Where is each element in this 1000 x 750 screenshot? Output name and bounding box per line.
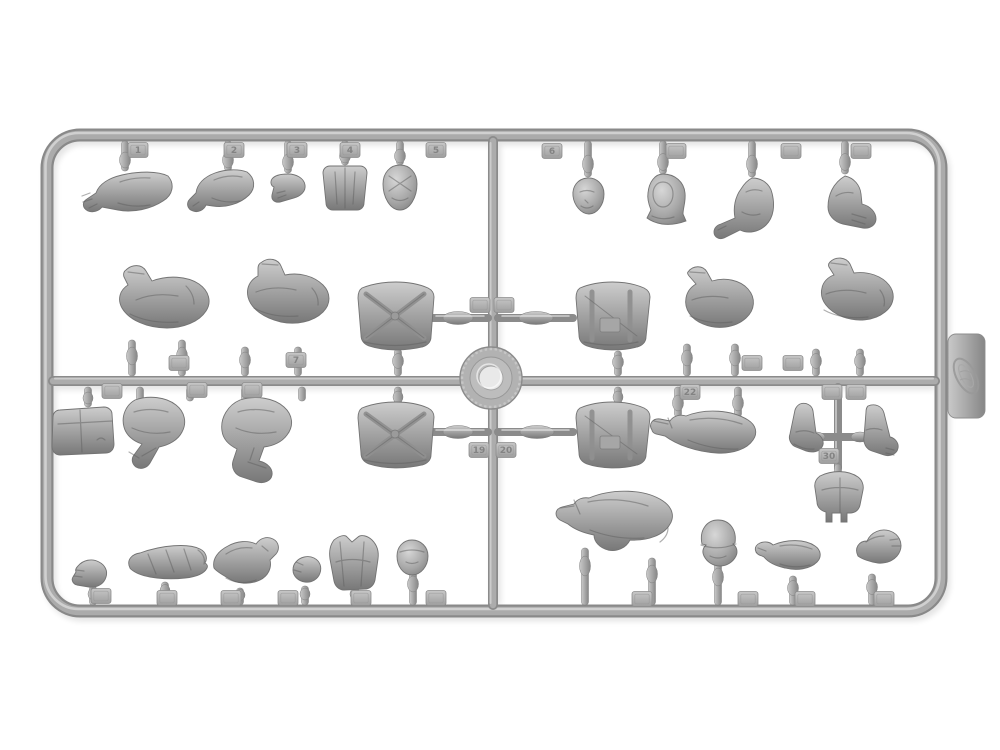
part-folded-legs-e [123, 397, 185, 468]
part-kneeling-legs [556, 491, 672, 550]
part-head-b [397, 540, 428, 575]
part-torso-back-a [358, 282, 434, 350]
part-bent-leg-c [686, 267, 754, 328]
part-forearm-fist [755, 541, 820, 570]
part-hooded-head-7 [647, 174, 686, 224]
part-bent-arm-9 [828, 176, 876, 228]
svg-text:30: 30 [823, 452, 836, 462]
svg-text:4: 4 [347, 146, 353, 156]
part-folded-legs-f [222, 398, 292, 483]
part-folded-legs-a [120, 266, 210, 328]
part-torso-front-a [576, 282, 650, 350]
part-hand-s [72, 560, 106, 587]
svg-text:7: 7 [293, 356, 299, 366]
part-equipment-pouch-4 [323, 166, 367, 210]
svg-text:20: 20 [500, 446, 513, 456]
svg-text:5: 5 [433, 146, 439, 156]
part-bent-arm-8 [714, 178, 774, 239]
part-gloved-arm-2 [188, 170, 254, 212]
part-pouch-b [52, 407, 114, 455]
svg-text:19: 19 [473, 446, 486, 456]
svg-text:1: 1 [135, 146, 141, 156]
part-forearm-b [864, 405, 898, 456]
part-folded-legs-b [247, 259, 329, 323]
part-torso-back-b [358, 402, 434, 468]
part-torso-front-b [576, 402, 650, 468]
sprue-photo: 1 2 3 4 5 6 19 20 7 22 30 [0, 0, 1000, 750]
part-hips [815, 472, 864, 522]
svg-text:2: 2 [231, 146, 237, 156]
part-folded-legs-d [821, 258, 893, 320]
part-hand-t [293, 557, 321, 583]
part-bed-roll [129, 546, 208, 579]
svg-text:3: 3 [294, 146, 300, 156]
part-gloved-arm-1 [82, 172, 172, 212]
part-boot [789, 403, 823, 452]
part-forearm-hand [857, 530, 901, 563]
part-bare-head-6 [573, 178, 604, 214]
part-bent-arm-bottom [214, 538, 279, 584]
part-extended-legs [651, 411, 756, 453]
svg-text:6: 6 [549, 147, 555, 157]
part-capped-head [701, 520, 737, 566]
injection-hub [460, 347, 522, 409]
part-vest [330, 536, 379, 590]
part-hand-3 [271, 174, 305, 202]
sprue-side-tab [948, 334, 985, 418]
svg-text:22: 22 [684, 388, 697, 398]
part-helmeted-head-5 [383, 165, 417, 210]
